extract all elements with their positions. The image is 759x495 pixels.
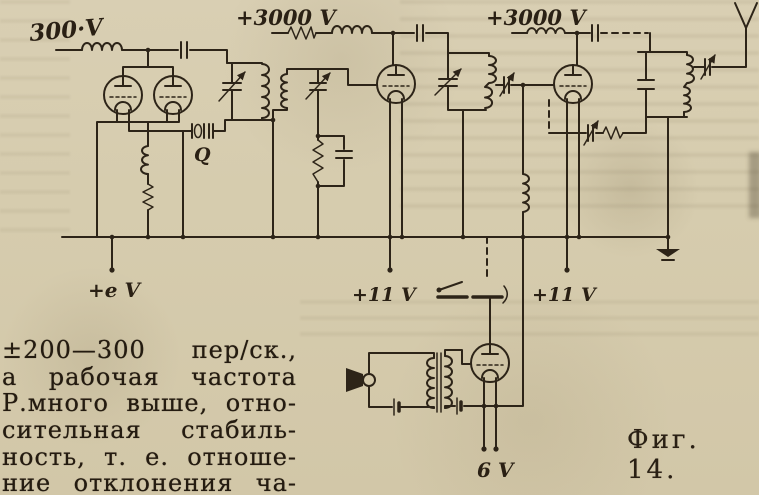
paragraph-line: а рабочая частота xyxy=(2,363,297,390)
figure-caption: Фиг. 14. xyxy=(627,425,759,485)
resistor-symbol xyxy=(143,184,153,210)
quartz-crystal-symbol xyxy=(192,124,213,138)
quartz-crystal-label: Q xyxy=(194,144,211,166)
oscillator-supply-label: 300·V xyxy=(28,13,106,47)
paragraph-line: сительная стабиль- xyxy=(2,416,297,443)
ground-symbol xyxy=(656,237,680,260)
capacitor-symbol xyxy=(417,25,423,41)
oscillator-tube-left xyxy=(104,76,142,114)
interstage-grid-circuit xyxy=(281,69,377,237)
paragraph-line: ние отклонения ча- xyxy=(2,469,297,495)
tank-coil-symbol xyxy=(262,64,269,118)
modulator-stage xyxy=(346,237,507,448)
cathode-choke-symbol xyxy=(141,146,148,174)
rf-choke-symbol xyxy=(82,43,122,50)
oscillator-stage xyxy=(56,42,287,237)
grid-choke-symbol xyxy=(523,174,529,212)
paragraph-line: ность, т. е. отноше- xyxy=(2,443,297,470)
modulator-filament-label: 6 V xyxy=(477,458,516,482)
tank-coil-symbol xyxy=(684,55,694,112)
microphone-symbol xyxy=(346,368,375,392)
amplifier-supply-label: +3000 V xyxy=(236,5,338,30)
grid-battery-symbol xyxy=(457,398,461,414)
grid-leak-resistor-symbol xyxy=(313,140,323,182)
amplifier-tube xyxy=(377,65,415,103)
paragraph-line: Р.много выше, отно- xyxy=(2,389,297,416)
capacitor-symbol xyxy=(181,42,187,58)
capacitor-symbol xyxy=(592,25,598,41)
oscillator-tube-right xyxy=(154,76,192,114)
resistor-symbol xyxy=(603,127,623,139)
filament-terminal-right-label: +11 V xyxy=(532,284,598,306)
capacitor-symbol xyxy=(638,80,654,89)
rf-choke-symbol xyxy=(332,26,372,33)
telegraph-key-symbol xyxy=(438,282,507,303)
output-tube xyxy=(554,65,592,103)
output-supply-label: +3000 V xyxy=(486,5,588,30)
capacitor-symbol xyxy=(336,151,352,158)
scanned-book-page: 300·V +3000 V +3000 V +e V +11 V +11 V 6… xyxy=(0,0,759,495)
battery-symbol xyxy=(394,399,399,415)
body-text: ±200—300 пер/ск., а рабочая частота Р.мн… xyxy=(2,336,297,495)
output-stage xyxy=(512,3,757,270)
grid-bias-terminal-label: +e V xyxy=(88,278,142,302)
tank-coil-symbol xyxy=(485,56,496,108)
modulation-transformer-symbol xyxy=(427,353,452,412)
modulator-tube xyxy=(471,344,509,382)
filament-terminal-left-label: +11 V xyxy=(352,284,418,306)
antenna-symbol xyxy=(735,3,757,28)
paragraph-line: ±200—300 пер/ск., xyxy=(2,336,297,363)
grid-coil-symbol xyxy=(281,74,287,108)
